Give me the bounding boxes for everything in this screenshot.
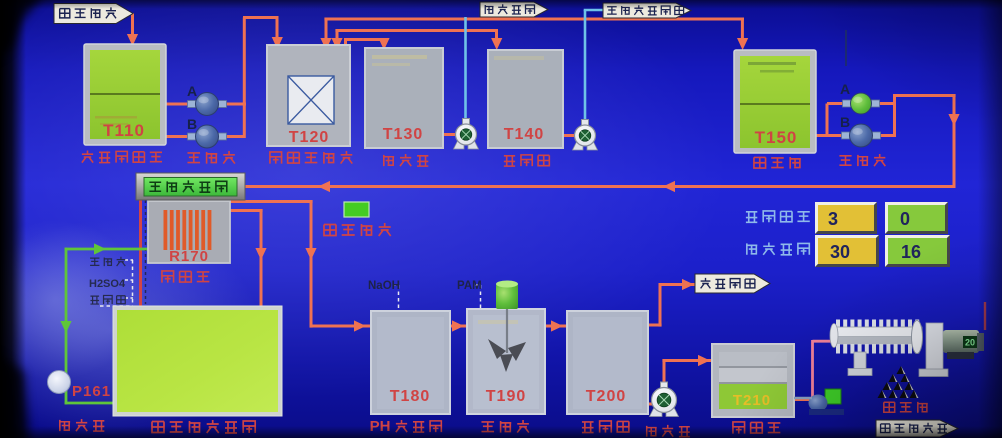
svg-text:T110: T110 — [103, 121, 145, 140]
svg-text:A: A — [840, 81, 850, 97]
svg-text:3: 3 — [828, 209, 838, 229]
svg-text:B: B — [187, 116, 197, 132]
svg-text:T200: T200 — [586, 388, 626, 405]
svg-text:B: B — [840, 114, 850, 130]
svg-text:T140: T140 — [504, 126, 544, 143]
svg-text:T190: T190 — [486, 388, 526, 405]
svg-text:T150: T150 — [755, 128, 798, 147]
svg-text:T120: T120 — [289, 129, 329, 146]
svg-text:PAM: PAM — [457, 280, 482, 292]
svg-text:A: A — [187, 83, 197, 99]
svg-text:NaOH: NaOH — [368, 280, 400, 292]
svg-text:R170: R170 — [169, 248, 209, 265]
svg-text:T130: T130 — [383, 126, 423, 143]
svg-text:T180: T180 — [390, 388, 430, 405]
svg-text:P161: P161 — [72, 383, 111, 400]
svg-text:0: 0 — [900, 209, 910, 229]
svg-text:H2SO4: H2SO4 — [89, 278, 126, 290]
svg-text:30: 30 — [830, 242, 850, 262]
